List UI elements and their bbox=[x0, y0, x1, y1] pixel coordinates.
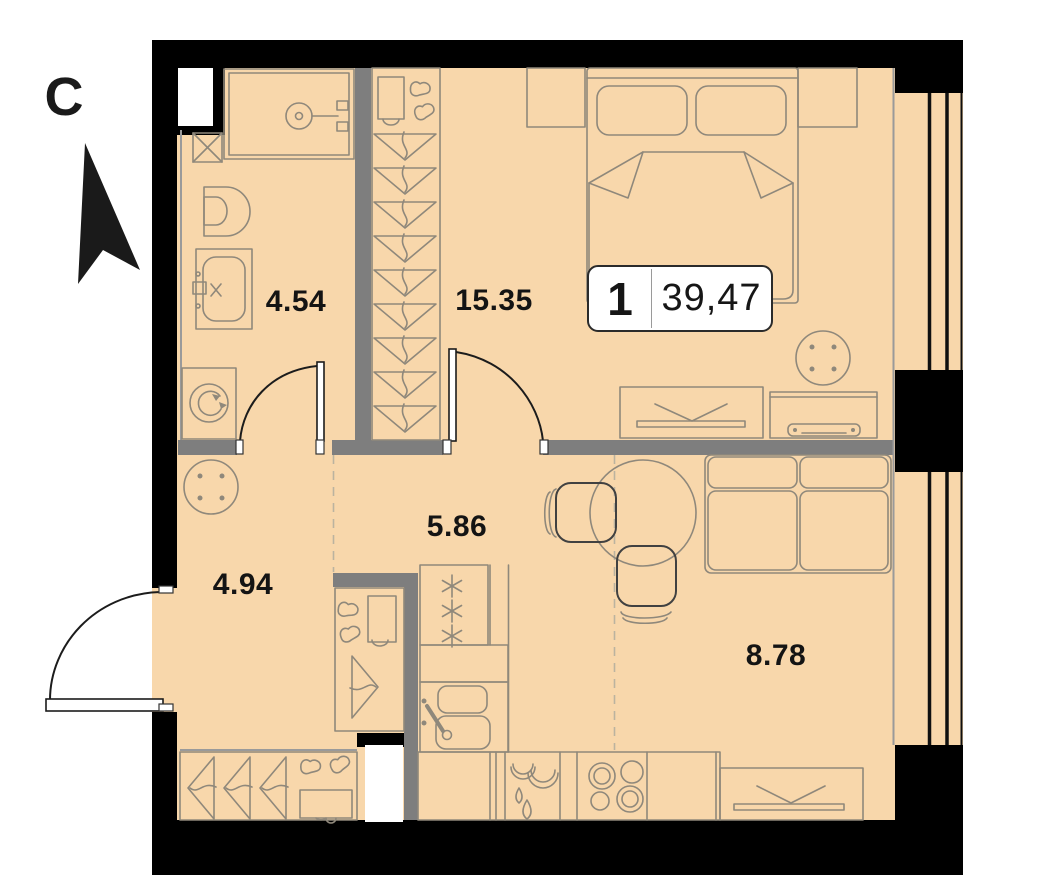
room-area-hallway: 4.94 bbox=[213, 568, 273, 602]
room-area-corridor: 5.86 bbox=[427, 510, 487, 544]
compass-letter: C bbox=[45, 66, 84, 128]
room-area-living-kitchen: 8.78 bbox=[746, 639, 806, 673]
room-area-bathroom: 4.54 bbox=[266, 285, 326, 319]
room-area-bedroom: 15.35 bbox=[455, 284, 533, 318]
wall-niche-bottom bbox=[365, 745, 403, 822]
wall-niche-top bbox=[178, 68, 213, 126]
apartment-badge: 1 39,47 bbox=[587, 265, 773, 332]
badge-total-area: 39,47 bbox=[652, 267, 771, 330]
badge-room-count: 1 bbox=[589, 267, 651, 330]
floorplan: C 4.54 15.35 5.86 4.94 8.78 1 39,47 bbox=[0, 0, 1038, 879]
floorplan-drawing bbox=[0, 0, 1038, 879]
north-arrow-icon bbox=[78, 143, 140, 284]
